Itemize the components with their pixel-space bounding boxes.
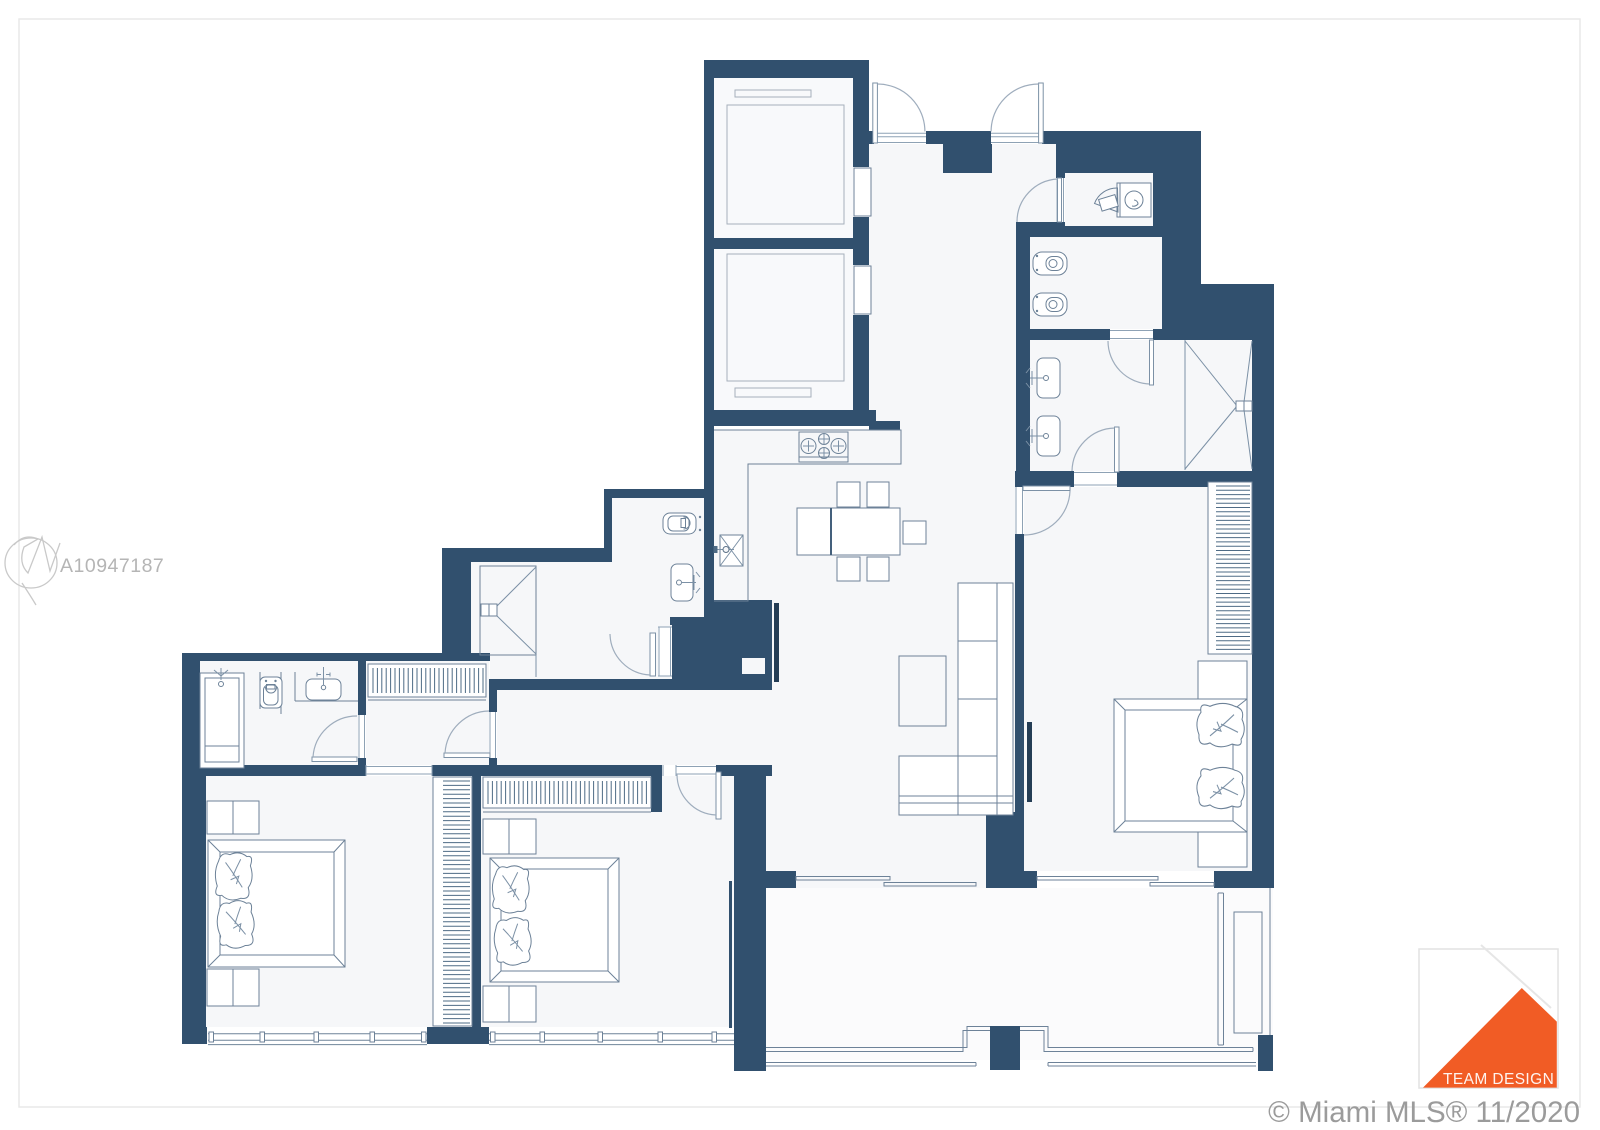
svg-text:A10947187: A10947187 xyxy=(60,555,164,577)
svg-text:© Miami MLS® 11/2020: © Miami MLS® 11/2020 xyxy=(1268,1096,1580,1129)
svg-text:TEAM DESIGN: TEAM DESIGN xyxy=(1443,1071,1554,1088)
